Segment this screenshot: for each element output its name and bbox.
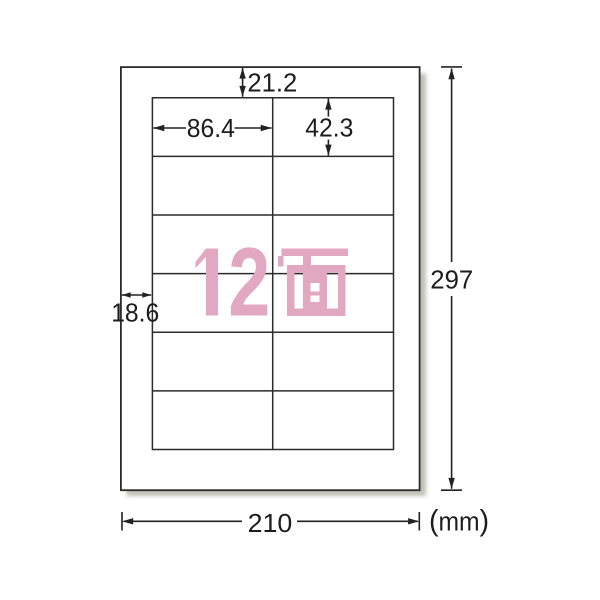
svg-text:18.6: 18.6 <box>111 299 159 328</box>
svg-text:210: 210 <box>248 509 293 539</box>
svg-text:86.4: 86.4 <box>187 114 235 143</box>
svg-text:42.3: 42.3 <box>305 114 353 143</box>
svg-text:297: 297 <box>430 266 473 294</box>
svg-text:2: 2 <box>228 229 270 337</box>
svg-text:21.2: 21.2 <box>247 69 297 97</box>
svg-text:(mm): (mm) <box>429 505 489 538</box>
